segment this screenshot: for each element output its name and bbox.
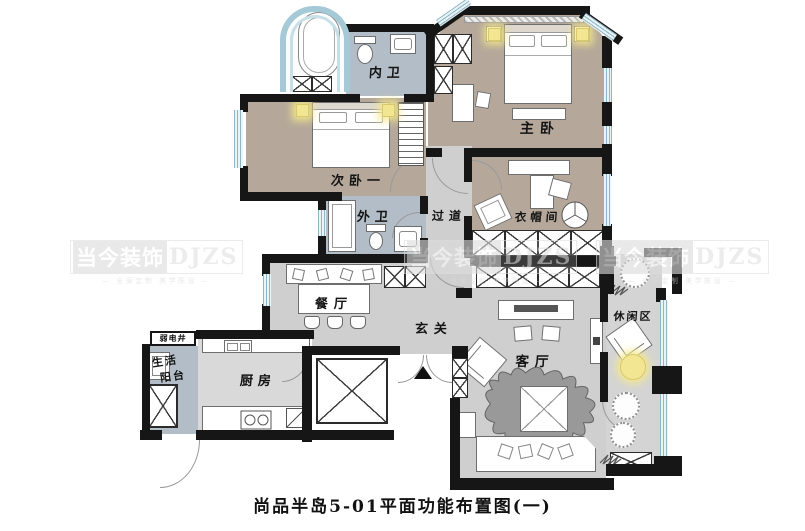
round-floor-lamp [620,354,646,380]
wall-segment [600,352,608,402]
hall-cabinet-cell [476,266,507,288]
wall-segment [652,366,682,394]
bay-window-inner [290,15,340,92]
bedside-lamp [382,104,395,117]
bedside-lamp [296,104,309,117]
room-label-leisure: 休闲区 [603,308,662,324]
wall-segment [464,148,472,182]
closet-xbox [434,34,453,64]
room-label-corridor: 过道 [423,207,474,224]
decor-dish [340,268,354,282]
door-arc [160,440,200,488]
room-label-utility-shaft: 弱电井 [150,333,197,344]
wall-segment [240,94,348,102]
decor-dish [362,268,375,281]
hall-cabinet-cell [569,266,600,288]
plant [612,392,640,420]
room-label-dining: 餐厅 [301,293,366,312]
pillow [541,35,567,47]
toilet-bowl [369,232,383,250]
wall-segment [302,430,394,440]
toilet-tank [354,36,376,44]
room-label-foyer: 玄关 [405,318,462,337]
sink [394,226,422,252]
wall-segment [302,346,312,442]
curtain-strip [464,16,584,23]
decor-dish [316,268,329,281]
wall-segment [600,246,614,294]
sofa-pillow [557,443,574,460]
headboard [313,103,389,110]
watermark-abbr: DJZS [693,244,766,270]
wall-segment [262,254,428,263]
decor-dish [292,268,305,281]
wall-segment [346,94,360,102]
watermark-brand: 当今装饰 [73,241,167,273]
dining-chair [304,316,320,329]
speaker [593,337,600,345]
pillow [355,112,383,123]
ottoman [541,325,560,342]
coffee-table [520,386,568,432]
wall-segment [452,346,468,358]
plant [610,422,636,448]
wall-segment [140,430,162,440]
sofa-pillow [537,443,554,460]
window-master-right-2 [603,126,611,144]
tv-screen [514,305,558,312]
wall-segment [606,464,662,476]
entry-closet-cell [452,358,468,378]
elevator-shaft [316,358,388,424]
watermark: 当今装饰 DJZS — 全案定制 美学陈设 — [70,240,243,286]
master-bed [504,24,572,104]
room-label-inner-bath: 内卫 [351,62,422,81]
room-label-master-bedroom: 主卧 [504,118,575,138]
plan-caption: 尚品半岛5-01平面功能布置图(一) [0,492,805,517]
window-outer-bath [318,210,326,236]
dining-cabinet-cell [384,266,405,288]
window-master-right-1 [603,68,611,102]
room-label-outer-bath: 外卫 [339,206,410,225]
wardrobe-shelves [398,102,424,166]
room-label-cloakroom: 衣帽间 [497,209,578,225]
desk [452,84,474,122]
dining-chair [327,316,343,329]
hall-cabinet-cell [507,266,538,288]
floor-plan: 内卫 主卧 次卧一 外卫 过道 衣帽间 餐厅 玄关 弱电井 生活 阳台 厨房 客… [0,0,805,531]
vanity-desk [508,160,570,175]
window-cloakroom-right [603,174,611,226]
dining-cabinet-cell [405,266,426,288]
watermark-abbr: DJZS [167,244,240,270]
sink-basin [240,343,250,351]
sofa-pillow [497,443,513,459]
wall-segment [142,344,150,436]
wall-segment [602,36,612,68]
toilet-tank [366,224,386,232]
stove-icon [240,410,272,430]
armchair-inner [614,326,645,357]
pillow [509,35,535,47]
room-label-second-bedroom: 次卧一 [309,170,406,189]
window-leisure-right-2 [660,394,668,456]
room-label-kitchen: 厨房 [227,370,288,389]
bedside-lamp [488,28,501,41]
window-dining [263,274,271,306]
blanket-line [505,55,571,56]
blanket-line [313,129,389,130]
sink-basin [394,38,412,50]
wall-segment [450,398,460,490]
second-bed [312,102,390,168]
cloakroom-wardrobe-cell [505,230,538,256]
sofa [476,436,596,472]
wall-segment [196,430,314,440]
window-second-bedroom [234,110,243,168]
sink-basin [227,343,238,351]
cloakroom-wardrobe-cell [538,230,571,256]
wall-segment [426,148,442,157]
kitchen-sink [224,340,252,353]
wall-segment [456,288,472,298]
wall-segment [672,248,682,294]
wall-segment [602,148,612,176]
headboard [505,25,571,33]
wall-segment [196,330,314,339]
sink [390,34,416,54]
closet-xbox [453,34,472,64]
wall-segment [262,254,270,276]
wall-segment [602,102,612,126]
wall-segment [344,24,432,32]
hall-cabinet-cell [538,266,569,288]
armchair-inner [465,345,499,379]
wall-segment [302,346,400,355]
watermark-tagline: — 全案定制 美学陈设 — [70,276,243,286]
toilet-bowl [357,44,373,64]
wall-segment [404,94,434,102]
bedside-lamp [576,28,589,41]
stool [475,91,492,109]
entry-closet-cell [452,378,468,398]
wall-segment [450,478,614,490]
entry-arrow-icon [414,366,432,379]
washing-machine [148,384,178,428]
wall-segment [460,6,590,15]
sink-basin [399,231,417,247]
sideboard [286,264,382,284]
wall-segment [470,148,612,157]
wall-segment [240,192,342,201]
sofa-pillow [518,444,533,459]
pillow [319,112,347,123]
wall-segment [470,256,616,266]
cloakroom-wardrobe-cell [472,230,505,256]
closet-xbox [434,66,453,94]
room-label-living: 客厅 [499,350,570,370]
side-table [458,412,476,438]
ottoman [513,325,532,342]
dining-chair [350,316,366,329]
kitchen-counter [202,338,310,353]
